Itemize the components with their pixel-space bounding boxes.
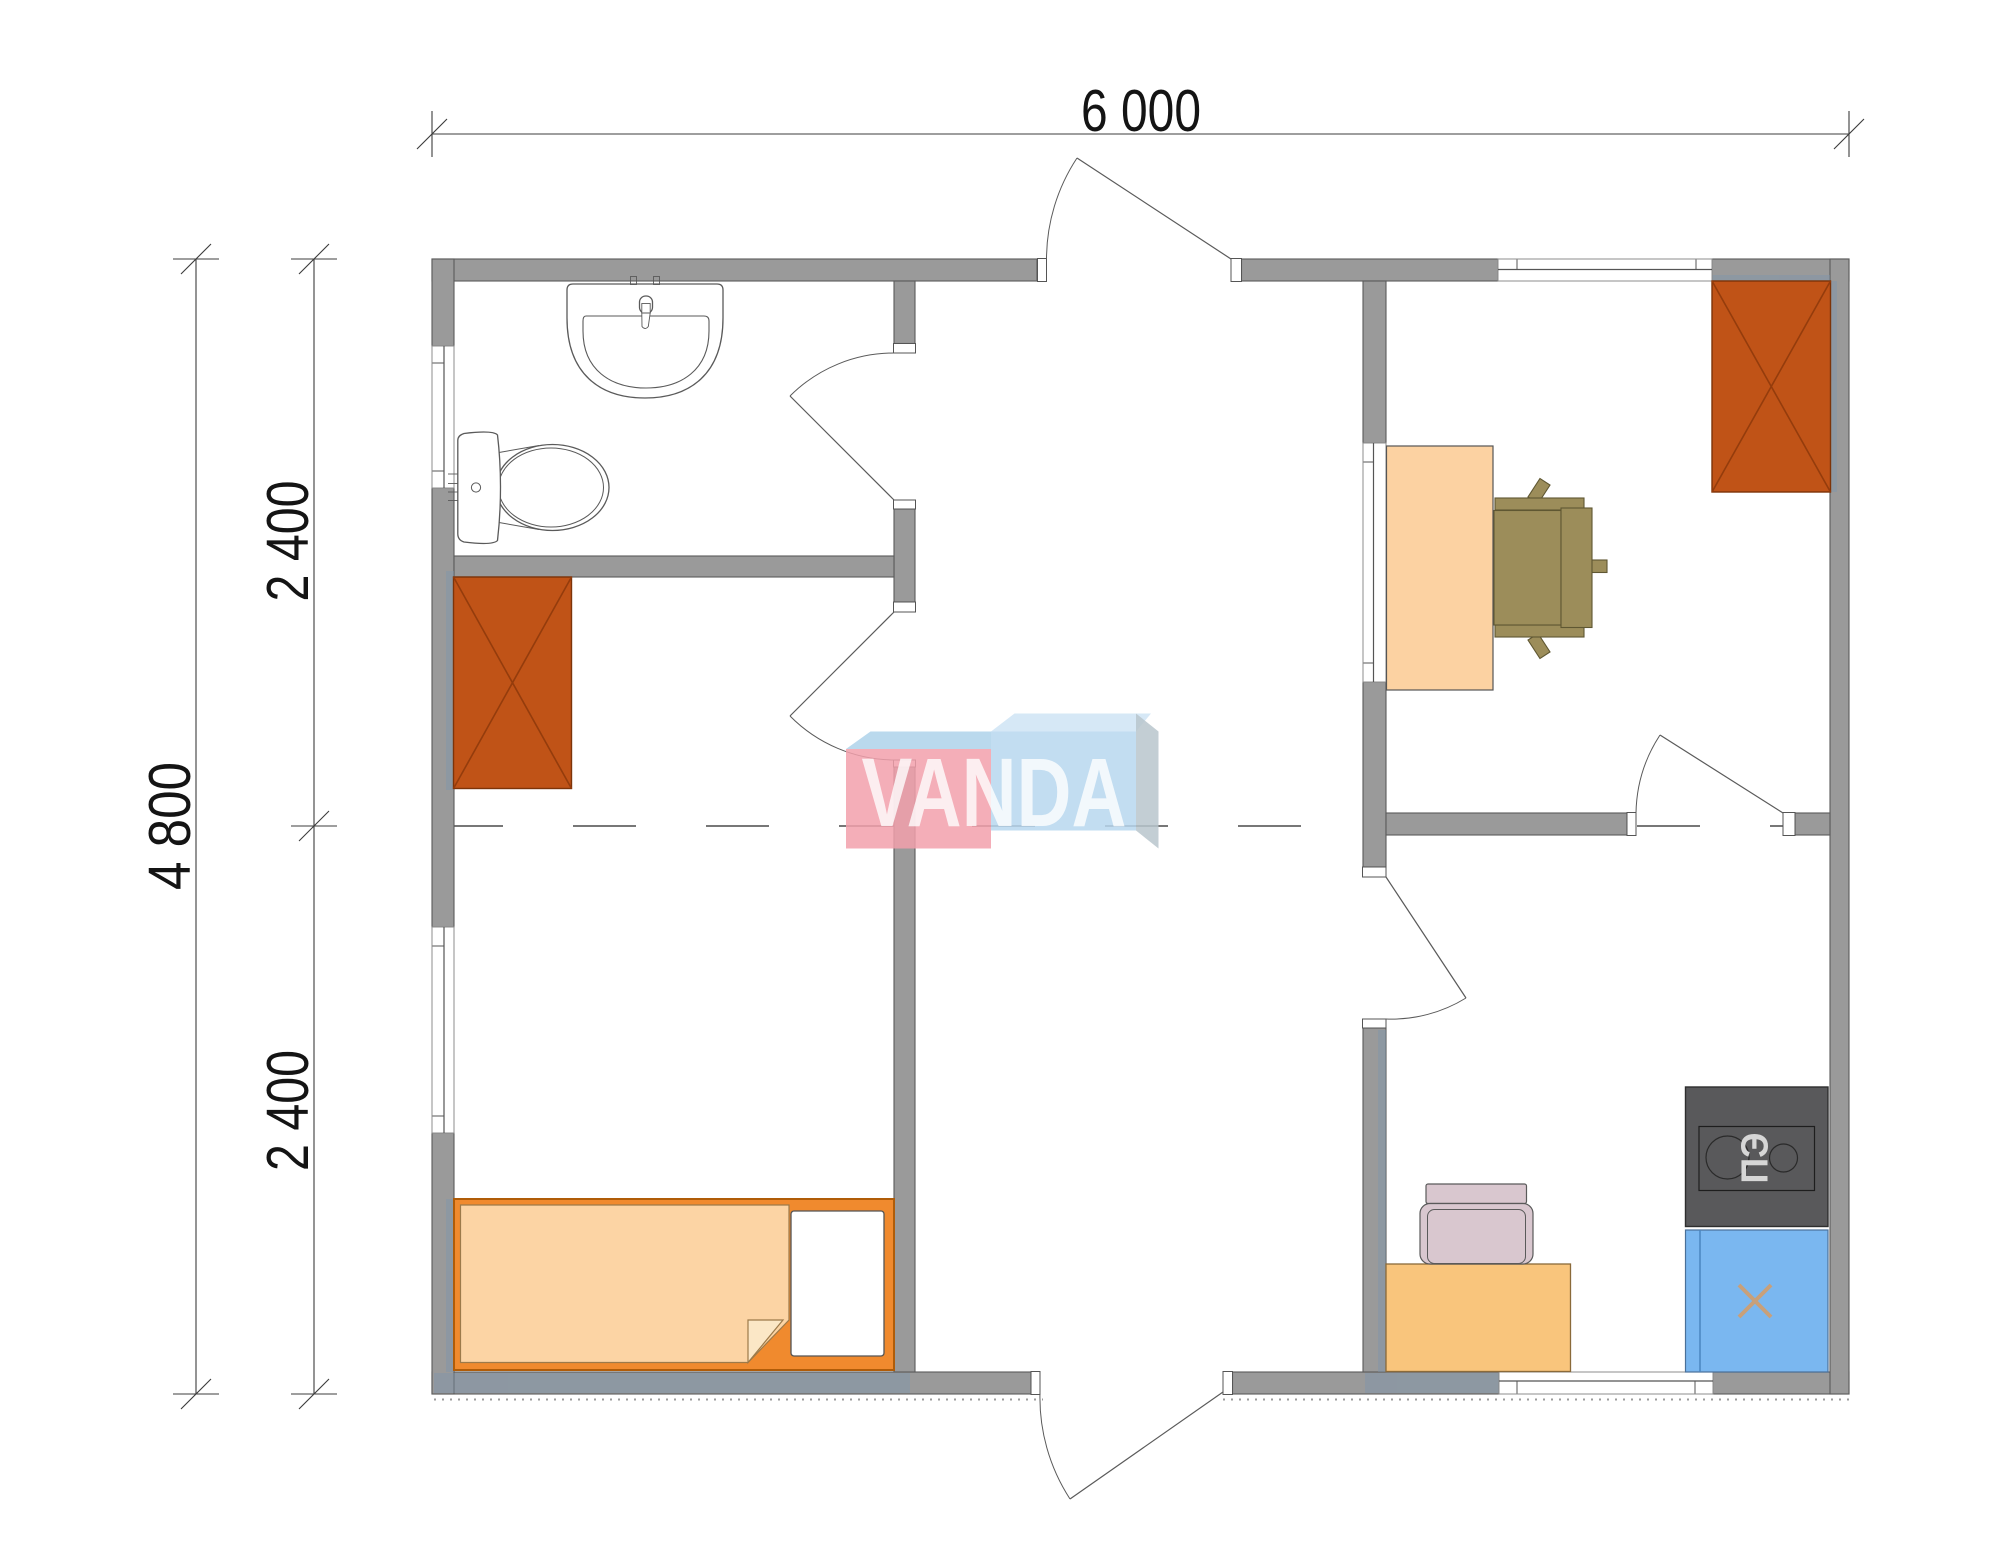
svg-text:4 800: 4 800 xyxy=(137,762,203,890)
svg-text:VANDA: VANDA xyxy=(862,738,1127,847)
svg-text:2 400: 2 400 xyxy=(255,1050,321,1171)
svg-text:6 000: 6 000 xyxy=(1081,78,1201,144)
svg-text:2 400: 2 400 xyxy=(255,481,321,602)
svg-text:ПЭ: ПЭ xyxy=(1735,1133,1777,1184)
